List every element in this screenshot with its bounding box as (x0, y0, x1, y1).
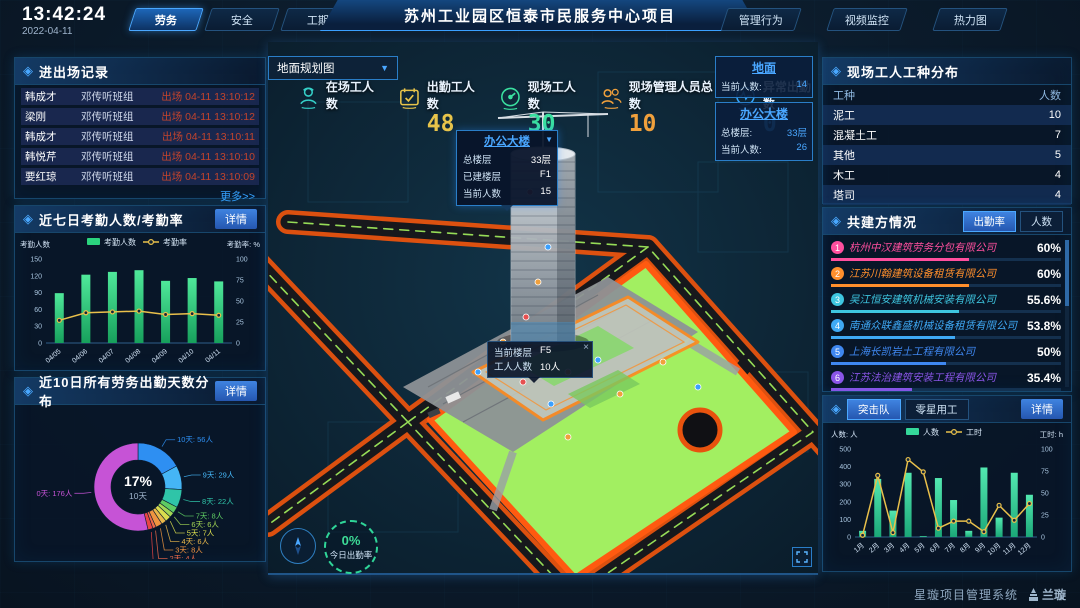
svg-text:75: 75 (236, 278, 244, 285)
svg-text:10天: 10天 (129, 491, 147, 501)
svg-text:25: 25 (1041, 513, 1049, 520)
close-icon[interactable]: × (583, 342, 589, 353)
distribution-detail-button[interactable]: 详情 (215, 381, 257, 401)
system-name: 星璇项目管理系统 (914, 586, 1018, 603)
partner-bar-track (831, 388, 1061, 391)
panel-teams-header: ◈ 突击队 零星用工 详情 (823, 396, 1071, 423)
building-popup-row: 当前人数 15 (463, 186, 551, 200)
diamond-icon: ◈ (23, 63, 33, 79)
fullscreen-button[interactable] (792, 547, 812, 567)
svg-text:120: 120 (30, 273, 42, 280)
partner-bar-track (831, 336, 1061, 339)
worker-type-row: 混凝土工7 (823, 125, 1071, 145)
overlay-value: 26 (796, 142, 807, 156)
worker-type-count: 7 (1021, 129, 1061, 141)
diamond-icon: ◈ (831, 213, 841, 229)
partner-bar-track (831, 310, 1061, 313)
partner-bar-fill (831, 362, 946, 365)
tab-management-behavior-label: 管理行为 (739, 12, 783, 28)
entry-exit-row: 韩悦芹邓传听班组出场 04-11 13:10:10 (21, 148, 259, 165)
svg-text:人数: 人: 人数: 人 (831, 429, 858, 439)
tooltip-value: F5 (540, 345, 551, 359)
entry-exit-name: 韩成才 (25, 129, 81, 144)
worker-type-row: 塔司4 (823, 185, 1071, 205)
clock-date: 2022-04-11 (22, 27, 106, 37)
panel-partners-title: 共建方情况 (847, 212, 963, 231)
partner-line: 1杭州中汉建筑劳务分包有限公司60% (831, 240, 1061, 255)
attendance-7d-detail-button[interactable]: 详情 (215, 209, 257, 229)
today-attendance-ring: 0% 今日出勤率 (324, 520, 378, 574)
building-popup-row: 已建楼层 F1 (463, 169, 551, 183)
svg-text:2天: 4人: 2天: 4人 (170, 554, 198, 559)
panel-partners: ◈ 共建方情况 出勤率 人数 1杭州中汉建筑劳务分包有限公司60%2江苏川翰建筑… (822, 207, 1072, 392)
diamond-icon: ◈ (23, 383, 33, 399)
stat-text: 在场工人数 (326, 78, 381, 113)
partner-value: 60% (1037, 241, 1061, 255)
svg-text:0: 0 (38, 341, 42, 348)
tab-labor-label: 劳务 (155, 12, 177, 28)
diamond-icon: ◈ (831, 63, 841, 79)
tooltip-value: 10人 (540, 359, 560, 373)
floor-tooltip-row: 工人人数 10人 (494, 359, 586, 373)
entry-exit-team: 邓传听班组 (81, 169, 161, 184)
worker-type-row: 其他5 (823, 145, 1071, 165)
svg-text:04/10: 04/10 (177, 348, 195, 365)
partners-tab-headcount[interactable]: 人数 (1020, 211, 1063, 232)
partner-line: 2江苏川翰建筑设备租赁有限公司60% (831, 266, 1061, 281)
stat-worker: 在场工人数 (296, 78, 381, 136)
partner-line: 4南通众联鑫盛机械设备租赁有限公司53.8% (831, 318, 1061, 333)
overlay-office-tower: 办公大楼 总楼层: 33层 当前人数: 26 (715, 102, 813, 161)
worker-type-count: 10 (1021, 109, 1061, 121)
diamond-icon: ◈ (23, 211, 33, 227)
panel-entry-exit: ◈ 进出场记录 韩成才邓传听班组出场 04-11 13:10:12梁刚邓传听班组… (14, 57, 266, 199)
worker-types-table: 泥工10混凝土工7其他5木工4塔司4 (823, 105, 1071, 205)
panel-teams: ◈ 突击队 零星用工 详情 人数: 人工时: h人数工时010020030040… (822, 395, 1072, 572)
panel-partners-header: ◈ 共建方情况 出勤率 人数 (823, 208, 1071, 235)
stat-text: 现场工人数30 (528, 78, 583, 136)
partner-item[interactable]: 4南通众联鑫盛机械设备租赁有限公司53.8% (831, 318, 1061, 339)
partner-bar-fill (831, 284, 969, 287)
svg-text:100: 100 (1041, 447, 1053, 454)
svg-text:0: 0 (236, 341, 240, 348)
entry-exit-event: 出场 04-11 13:10:12 (161, 89, 255, 104)
entry-exit-name: 韩悦芹 (25, 149, 81, 164)
partner-line: 6江苏法治建筑安装工程有限公司35.4% (831, 370, 1061, 385)
stat-people: 现场管理人员总数10 (599, 78, 717, 136)
tab-safety[interactable]: 安全 (204, 8, 279, 31)
partner-bar-track (831, 284, 1061, 287)
entry-exit-name: 梁刚 (25, 109, 81, 124)
compass-icon (287, 535, 309, 557)
partner-bar-fill (831, 310, 959, 313)
teams-tab-shock-team[interactable]: 突击队 (847, 399, 901, 420)
svg-text:50: 50 (236, 299, 244, 306)
stat-label: 现场工人数 (528, 78, 583, 112)
svg-text:04/11: 04/11 (204, 348, 222, 364)
stat-label: 在场工人数 (326, 78, 381, 112)
overlay-value: 14 (796, 79, 807, 93)
svg-text:90: 90 (34, 290, 42, 297)
partner-item[interactable]: 2江苏川翰建筑设备租赁有限公司60% (831, 266, 1061, 287)
tab-management-behavior[interactable]: 管理行为 (720, 8, 801, 31)
partner-name: 江苏法治建筑安装工程有限公司 (849, 370, 1023, 385)
svg-text:60: 60 (34, 307, 42, 314)
popup-label: 已建楼层 (463, 169, 501, 183)
svg-text:考勤人数: 考勤人数 (104, 237, 136, 247)
entry-exit-event: 出场 04-11 13:10:11 (162, 129, 255, 144)
svg-text:100: 100 (236, 257, 248, 264)
worker-types-col-count: 人数 (1021, 87, 1061, 103)
building-popup: ▼ 办公大楼 总楼层 33层 已建楼层 F1 当前人数 15 (456, 130, 558, 206)
panel-worker-types-title: 现场工人工种分布 (847, 62, 1063, 81)
stat-label: 现场管理人员总数 (629, 78, 717, 112)
brand-logo-text: 兰璇 (1042, 586, 1066, 603)
svg-text:30: 30 (34, 324, 42, 331)
popup-value: F1 (540, 169, 551, 183)
fullscreen-icon (796, 551, 808, 563)
calendar-icon (397, 84, 422, 111)
partners-tab-attendance-rate[interactable]: 出勤率 (963, 211, 1017, 232)
svg-text:300: 300 (839, 482, 851, 489)
entry-exit-list: 韩成才邓传听班组出场 04-11 13:10:12梁刚邓传听班组出场 04-11… (15, 88, 265, 185)
overlay-label: 当前人数: (721, 79, 762, 93)
today-attendance-pct: 0% (342, 533, 361, 548)
svg-text:25: 25 (236, 320, 244, 327)
partner-value: 50% (1037, 345, 1061, 359)
partner-rank-badge: 4 (831, 319, 844, 332)
stat-label: 出勤工人数 (427, 78, 482, 112)
tower-logo-icon (1028, 588, 1039, 601)
entry-exit-team: 邓传听班组 (81, 149, 161, 164)
tab-safety-label: 安全 (231, 12, 253, 28)
svg-text:04/05: 04/05 (45, 348, 63, 365)
panel-distribution-header: ◈ 近10日所有劳务出勤天数分布 详情 (15, 378, 265, 405)
entry-exit-event: 出场 04-11 13:10:09 (161, 169, 255, 184)
partner-value: 55.6% (1027, 293, 1061, 307)
svg-text:04/06: 04/06 (71, 348, 89, 365)
svg-text:考勤率: 考勤率 (163, 237, 187, 247)
worker-type-name: 塔司 (833, 187, 1021, 203)
worker-type-count: 4 (1021, 189, 1061, 201)
panel-attendance-days-distribution: ◈ 近10日所有劳务出勤天数分布 详情 10天: 56人9天: 29人8天: 2… (14, 377, 266, 562)
entry-exit-team: 邓传听班组 (81, 109, 161, 124)
partner-name: 杭州中汉建筑劳务分包有限公司 (849, 240, 1033, 255)
svg-text:17%: 17% (124, 473, 153, 489)
svg-text:人数: 人数 (923, 427, 939, 437)
overlay-value: 33层 (787, 125, 807, 139)
partner-bar-fill (831, 258, 969, 261)
entry-exit-name: 韩成才 (25, 89, 81, 104)
overlay-ground: 地面 当前人数: 14 (715, 56, 813, 98)
partner-name: 江苏川翰建筑设备租赁有限公司 (849, 266, 1033, 281)
svg-text:工时: h: 工时: h (1040, 429, 1063, 439)
partner-name: 南通众联鑫盛机械设备租赁有限公司 (849, 318, 1023, 333)
svg-text:0: 0 (1041, 535, 1045, 542)
svg-text:150: 150 (30, 257, 42, 264)
page-title: 苏州工业园区恒泰市民服务中心项目 (404, 5, 676, 26)
svg-text:8天: 22人: 8天: 22人 (202, 497, 234, 506)
people-icon (599, 84, 624, 111)
partner-value: 60% (1037, 267, 1061, 281)
svg-text:04/08: 04/08 (124, 348, 142, 365)
svg-text:2月: 2月 (868, 541, 881, 554)
svg-text:1月: 1月 (852, 541, 865, 554)
worker-type-count: 5 (1021, 149, 1061, 161)
svg-text:9月: 9月 (974, 541, 987, 554)
svg-text:4月: 4月 (898, 541, 911, 554)
partners-scrollbar-thumb[interactable] (1065, 240, 1069, 306)
partner-line: 5上海长凯岩土工程有限公司50% (831, 344, 1061, 359)
worker-types-table-header: 工种 人数 (823, 85, 1071, 105)
panel-entry-exit-title: 进出场记录 (39, 62, 257, 81)
svg-text:04/07: 04/07 (98, 348, 116, 365)
popup-label: 总楼层 (463, 152, 492, 166)
partner-name: 吴江恒安建筑机械安装有限公司 (849, 292, 1023, 307)
stat-value: 10 (629, 113, 717, 136)
entry-exit-more-link[interactable]: 更多>> (15, 188, 255, 204)
svg-text:10天: 56人: 10天: 56人 (177, 435, 213, 444)
overlay-office-row: 当前人数: 26 (721, 142, 807, 156)
entry-exit-row: 要红琼邓传听班组出场 04-11 13:10:09 (21, 168, 259, 185)
panel-attendance-7d-title: 近七日考勤人数/考勤率 (39, 210, 215, 229)
building-popup-title[interactable]: 办公大楼 (463, 133, 551, 149)
page-title-banner: 苏州工业园区恒泰市民服务中心项目 (320, 0, 760, 31)
entry-exit-name: 要红琼 (25, 169, 81, 184)
tab-heatmap-label: 热力图 (954, 12, 987, 28)
overlay-label: 总楼层: (721, 125, 752, 139)
svg-text:0: 0 (847, 535, 851, 542)
entry-exit-row: 韩成才邓传听班组出场 04-11 13:10:12 (21, 88, 259, 105)
stat-gauge: 现场工人数30 (498, 78, 583, 136)
teams-detail-button[interactable]: 详情 (1021, 399, 1063, 419)
attendance-days-donut-chart[interactable]: 10天: 56人9天: 29人8天: 22人7天: 8人6天: 6人5天: 7人… (18, 407, 262, 559)
worker-type-row: 木工4 (823, 165, 1071, 185)
floor-tooltip-row: 当前楼层 F5 (494, 345, 586, 359)
tab-video-monitor-label: 视频监控 (845, 12, 889, 28)
partners-scrollbar[interactable] (1065, 240, 1069, 387)
partner-name: 上海长凯岩土工程有限公司 (849, 344, 1033, 359)
brand-logo: 兰璇 (1028, 586, 1066, 603)
chevron-down-icon: ▼ (380, 63, 389, 73)
entry-exit-event: 出场 04-11 13:10:10 (161, 149, 255, 164)
svg-text:6月: 6月 (928, 541, 941, 554)
site-3d-map[interactable]: 地面规划图 ▼ 在场工人数出勤工人数48现场工人数30现场管理人员总数10异常出… (268, 42, 818, 575)
overlay-office-title[interactable]: 办公大楼 (721, 105, 807, 122)
partner-rank-badge: 5 (831, 345, 844, 358)
clock-time: 13:42:24 (22, 5, 106, 24)
diamond-icon: ◈ (831, 401, 841, 417)
worker-type-name: 泥工 (833, 107, 1021, 123)
partner-item[interactable]: 1杭州中汉建筑劳务分包有限公司60% (831, 240, 1061, 261)
partner-line: 3吴江恒安建筑机械安装有限公司55.6% (831, 292, 1061, 307)
svg-text:50: 50 (1041, 491, 1049, 498)
overlay-ground-title[interactable]: 地面 (721, 59, 807, 76)
panel-worker-types: ◈ 现场工人工种分布 工种 人数 泥工10混凝土工7其他5木工4塔司4 (822, 57, 1072, 204)
entry-exit-event: 出场 04-11 13:10:12 (161, 109, 255, 124)
worker-type-name: 木工 (833, 167, 1021, 183)
svg-text:100: 100 (839, 517, 851, 524)
partner-bar-track (831, 258, 1061, 261)
svg-text:考勤率: %: 考勤率: % (227, 239, 261, 249)
svg-text:200: 200 (839, 499, 851, 506)
tooltip-label: 工人人数 (494, 359, 532, 373)
svg-text:7月: 7月 (943, 541, 956, 554)
pond (680, 410, 720, 450)
panel-entry-exit-header: ◈ 进出场记录 (15, 58, 265, 85)
compass-button[interactable] (280, 528, 316, 564)
stat-text: 出勤工人数48 (427, 78, 482, 136)
svg-text:8月: 8月 (959, 541, 972, 554)
gauge-icon (498, 84, 523, 111)
partner-bar-track (831, 362, 1061, 365)
partner-rank-badge: 1 (831, 241, 844, 254)
panel-worker-types-header: ◈ 现场工人工种分布 (823, 58, 1071, 85)
stat-text: 现场管理人员总数10 (629, 78, 717, 136)
map-view-dropdown-value: 地面规划图 (277, 60, 335, 76)
partner-value: 53.8% (1027, 319, 1061, 333)
worker-type-row: 泥工10 (823, 105, 1071, 125)
teams-tab-casual-labor[interactable]: 零星用工 (905, 399, 969, 420)
tab-heatmap[interactable]: 热力图 (932, 8, 1007, 31)
worker-type-count: 4 (1021, 169, 1061, 181)
chevron-down-icon[interactable]: ▼ (545, 135, 553, 144)
clock: 13:42:24 2022-04-11 (22, 5, 106, 37)
svg-text:3月: 3月 (883, 541, 896, 554)
svg-text:400: 400 (839, 464, 851, 471)
popup-value: 33层 (531, 152, 551, 166)
svg-text:工时: 工时 (966, 427, 982, 437)
svg-text:5月: 5月 (913, 541, 926, 554)
partner-rank-badge: 2 (831, 267, 844, 280)
svg-text:0天: 176人: 0天: 176人 (37, 489, 73, 498)
partner-value: 35.4% (1027, 371, 1061, 385)
svg-text:9天: 29人: 9天: 29人 (203, 470, 235, 479)
map-view-dropdown[interactable]: 地面规划图 ▼ (268, 56, 398, 80)
teams-chart[interactable]: 人数: 人工时: h人数工时01002003004005000255075100… (829, 425, 1065, 567)
entry-exit-row: 韩成才邓传听班组出场 04-11 13:10:11 (21, 128, 259, 145)
partner-bar-fill (831, 388, 912, 391)
overlay-office-row: 总楼层: 33层 (721, 125, 807, 139)
partner-rank-badge: 6 (831, 371, 844, 384)
svg-text:考勤人数: 考勤人数 (20, 239, 50, 249)
stat-calendar: 出勤工人数48 (397, 78, 482, 136)
svg-text:10月: 10月 (986, 541, 1002, 557)
worker-types-col-type: 工种 (833, 87, 1021, 103)
partner-bar-fill (831, 336, 955, 339)
tooltip-label: 当前楼层 (494, 345, 532, 359)
attendance-7d-chart[interactable]: 考勤人数考勤率: %考勤人数考勤率03060901201500255075100… (18, 235, 262, 367)
overlay-label: 当前人数: (721, 142, 762, 156)
tab-labor[interactable]: 劳务 (128, 8, 203, 31)
partner-item[interactable]: 6江苏法治建筑安装工程有限公司35.4% (831, 370, 1061, 391)
today-attendance-label: 今日出勤率 (330, 549, 373, 561)
entry-exit-row: 梁刚邓传听班组出场 04-11 13:10:12 (21, 108, 259, 125)
panel-distribution-title: 近10日所有劳务出勤天数分布 (39, 372, 215, 410)
partner-item[interactable]: 3吴江恒安建筑机械安装有限公司55.6% (831, 292, 1061, 313)
svg-text:04/09: 04/09 (151, 348, 169, 365)
popup-value: 15 (540, 186, 551, 200)
svg-text:75: 75 (1041, 469, 1049, 476)
worker-type-name: 其他 (833, 147, 1021, 163)
building-popup-row: 总楼层 33层 (463, 152, 551, 166)
svg-text:11月: 11月 (1001, 541, 1017, 556)
worker-type-name: 混凝土工 (833, 127, 1021, 143)
svg-text:12月: 12月 (1016, 541, 1032, 557)
tab-video-monitor[interactable]: 视频监控 (826, 8, 907, 31)
floor-tooltip: × 当前楼层 F5 工人人数 10人 (487, 341, 593, 378)
top-bar: 13:42:24 2022-04-11 劳务 安全 工期 苏州工业园区恒泰市民服… (0, 0, 1080, 42)
overlay-ground-row: 当前人数: 14 (721, 79, 807, 93)
popup-label: 当前人数 (463, 186, 501, 200)
entry-exit-team: 邓传听班组 (81, 89, 161, 104)
partner-item[interactable]: 5上海长凯岩土工程有限公司50% (831, 344, 1061, 365)
panel-attendance-7d: ◈ 近七日考勤人数/考勤率 详情 考勤人数考勤率: %考勤人数考勤率030609… (14, 205, 266, 371)
partner-rank-badge: 3 (831, 293, 844, 306)
worker-icon (296, 84, 321, 111)
footer: 星璇项目管理系统 兰璇 (914, 586, 1066, 603)
svg-text:500: 500 (839, 447, 851, 454)
panel-attendance-7d-header: ◈ 近七日考勤人数/考勤率 详情 (15, 206, 265, 233)
entry-exit-team: 邓传听班组 (81, 129, 162, 144)
partners-list: 1杭州中汉建筑劳务分包有限公司60%2江苏川翰建筑设备租赁有限公司60%3吴江恒… (823, 240, 1071, 391)
